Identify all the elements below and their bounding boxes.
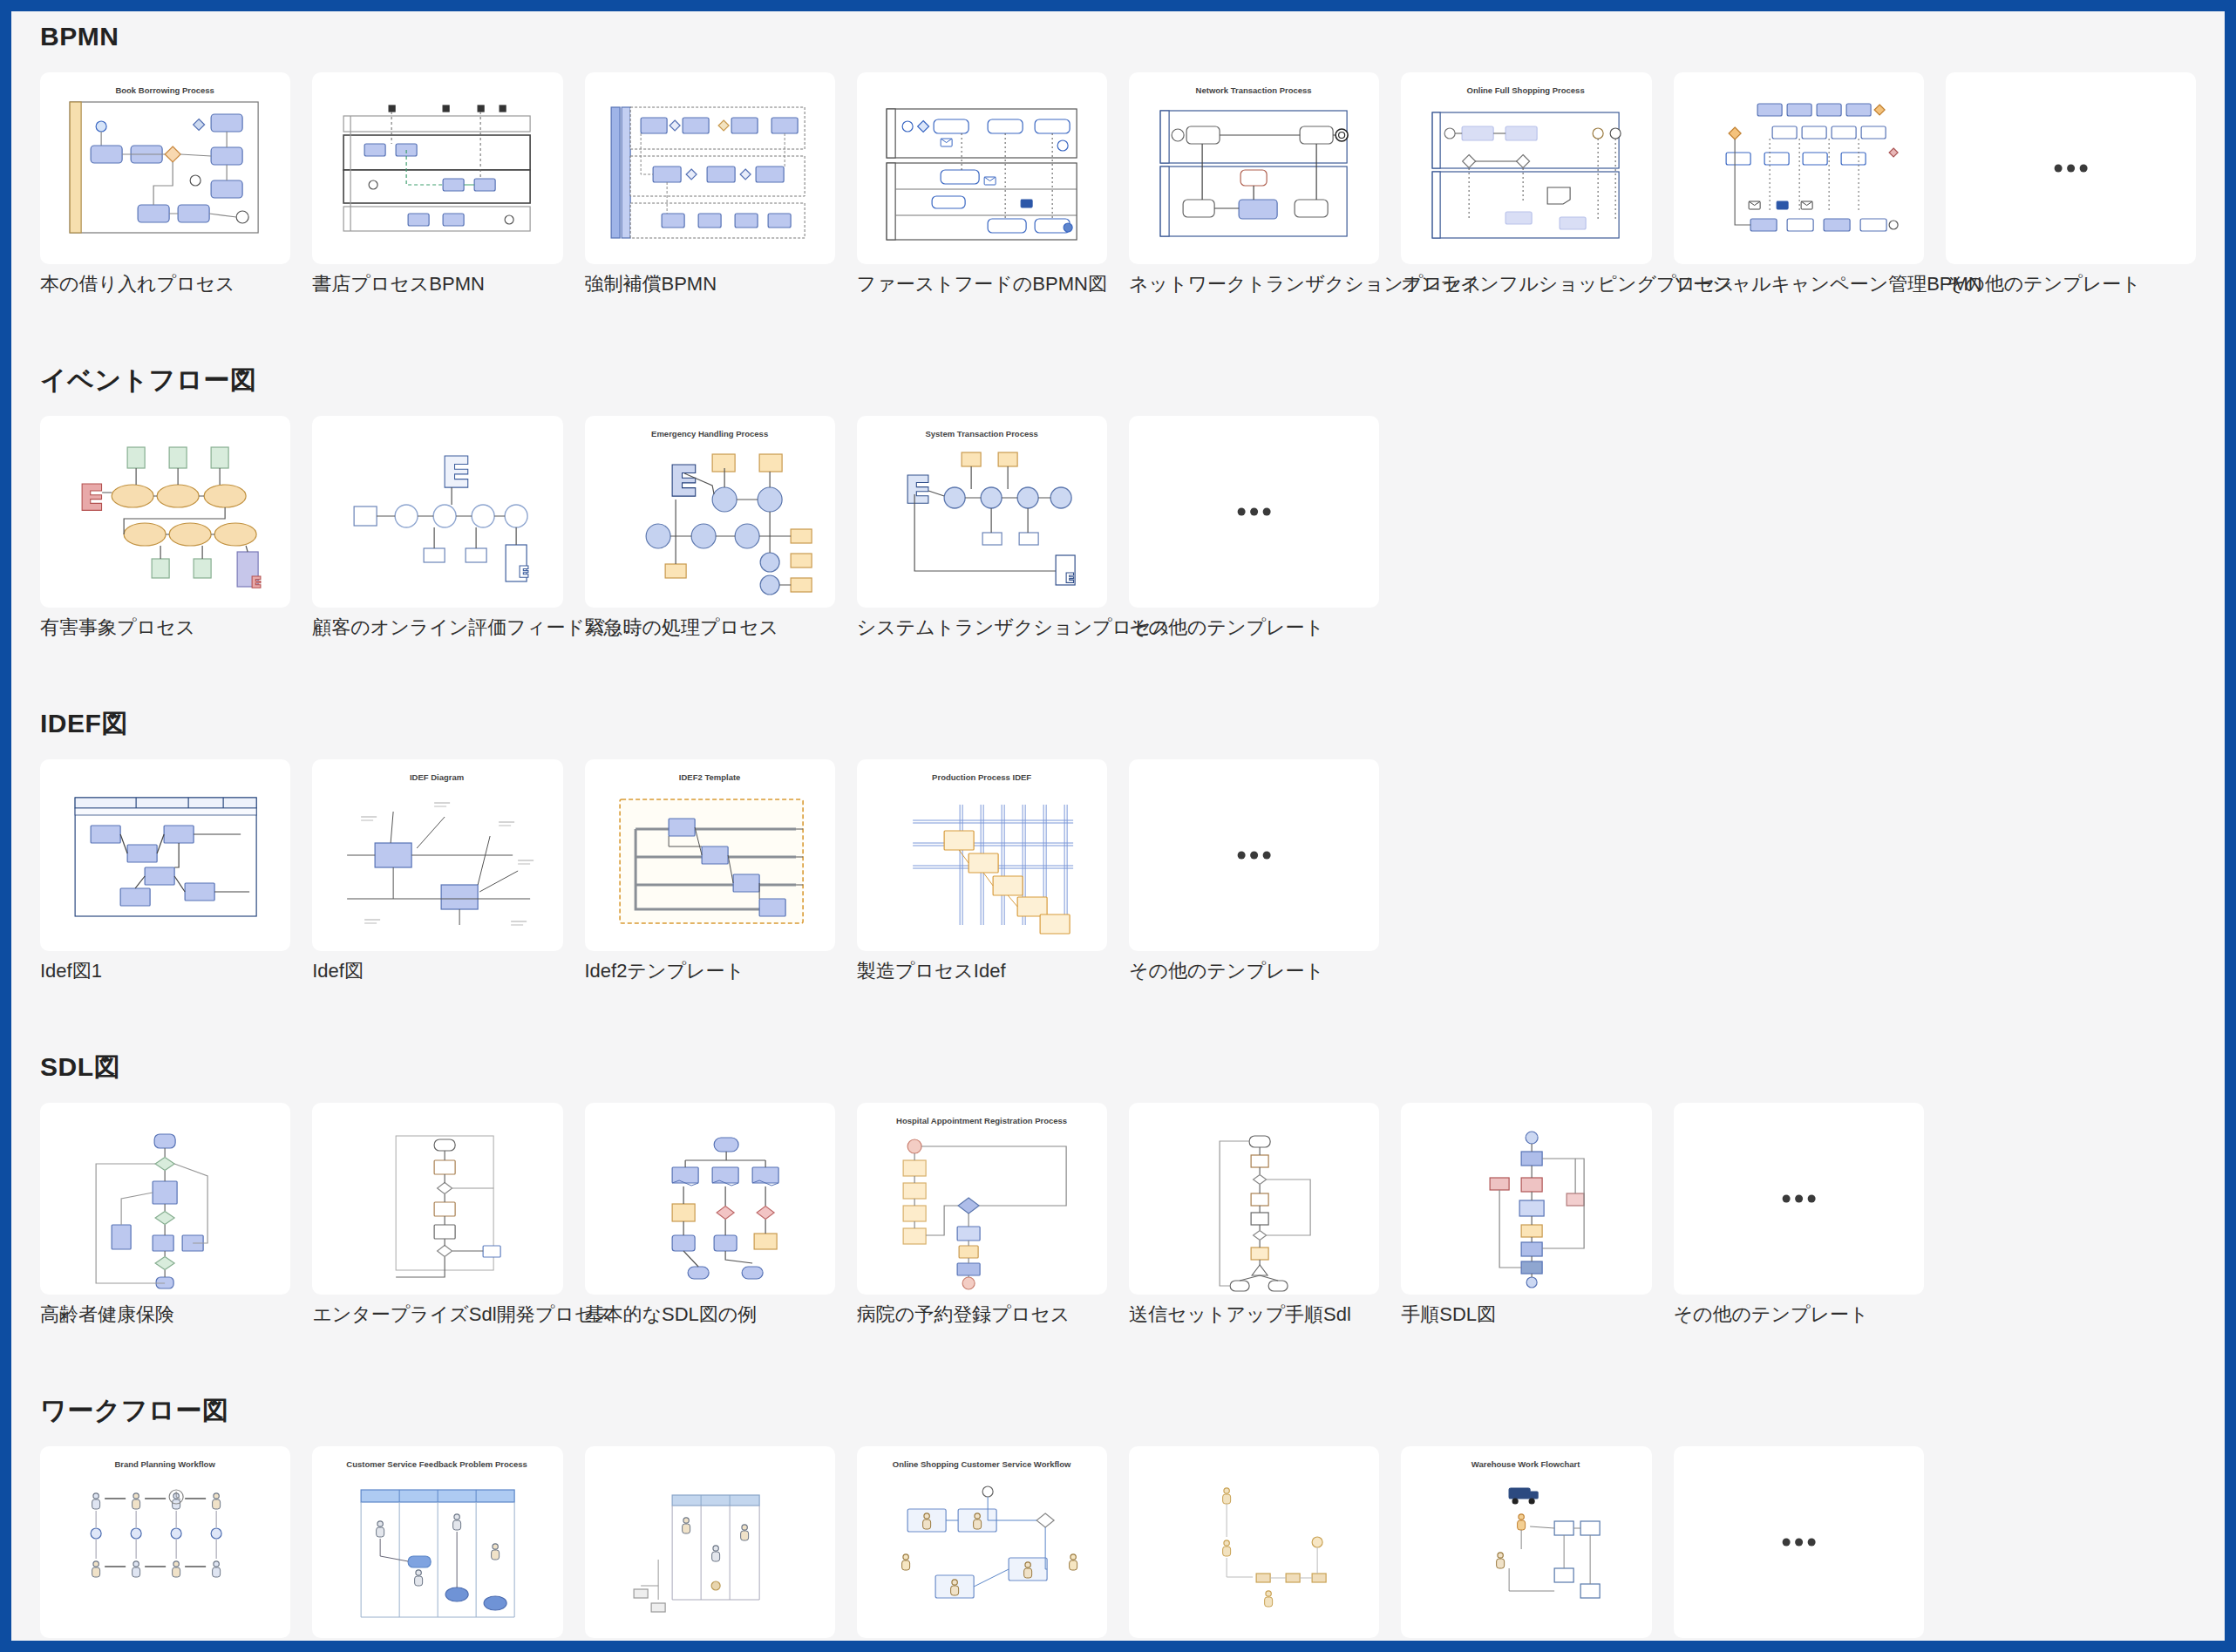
template-thumbnail: IDEF Diagram <box>312 759 562 951</box>
thumbnail-title: System Transaction Process <box>925 429 1037 438</box>
diagram-sketch <box>1129 759 1379 951</box>
diagram-sketch <box>1129 1103 1379 1295</box>
template-thumbnail: Network Transaction Process <box>1129 72 1379 264</box>
template-card-label: ファーストフードのBPMN図 <box>857 271 1107 297</box>
template-section: SDL図高齢者健康保険エンタープライズSdl開発プロセス基本的なSDL図の例Ho… <box>40 1052 2196 1328</box>
diagram-sketch <box>585 1103 835 1295</box>
diagram-sketch <box>857 72 1107 264</box>
template-grid: 有害事象プロセス顧客のオンライン評価フィードバッ...Emergency Han… <box>40 416 2196 641</box>
diagram-sketch <box>40 1103 290 1295</box>
thumbnail-title: Emergency Handling Process <box>651 429 768 438</box>
template-thumbnail <box>1674 1446 1924 1638</box>
template-thumbnail: Book Borrowing Process <box>40 72 290 264</box>
section-title: イベントフロー図 <box>40 365 2196 395</box>
template-thumbnail <box>312 416 562 608</box>
template-card-label: その他のテンプレート <box>1674 1302 1924 1328</box>
template-card-label <box>1401 1645 1651 1652</box>
diagram-sketch: System Transaction Process <box>857 416 1107 608</box>
diagram-sketch <box>1946 72 2196 264</box>
template-card[interactable]: 顧客のオンライン評価フィードバッ... <box>312 416 562 641</box>
template-thumbnail <box>1129 759 1379 951</box>
template-card-label: 手順SDL図 <box>1401 1302 1651 1328</box>
diagram-sketch <box>1674 72 1924 264</box>
thumbnail-title: Online Full Shopping Process <box>1467 85 1585 95</box>
template-card[interactable]: Customer Service Feedback Problem Proces… <box>312 1446 562 1652</box>
template-card-label: 高齢者健康保険 <box>40 1302 290 1328</box>
template-section: イベントフロー図有害事象プロセス顧客のオンライン評価フィードバッ...Emerg… <box>40 365 2196 641</box>
template-card[interactable]: Online Full Shopping Processオンラインフルショッピン… <box>1401 72 1651 297</box>
template-thumbnail: Brand Planning Workflow <box>40 1446 290 1638</box>
thumbnail-title: Hospital Appointment Registration Proces… <box>896 1116 1067 1125</box>
template-card-label: オンラインフルショッピングプロセス <box>1401 271 1651 297</box>
template-card-label: 製造プロセスIdef <box>857 958 1107 984</box>
diagram-sketch <box>1401 1103 1651 1295</box>
section-title: IDEF図 <box>40 709 2196 738</box>
template-card-label <box>1674 1645 1924 1652</box>
template-thumbnail: Customer Service Feedback Problem Proces… <box>312 1446 562 1638</box>
template-card-label: Idef2テンプレート <box>585 958 835 984</box>
template-card[interactable]: 送信セットアップ手順Sdl <box>1129 1103 1379 1328</box>
template-card[interactable]: Emergency Handling Process緊急時の処理プロセス <box>585 416 835 641</box>
template-card-label: ネットワークトランザクションプロセス <box>1129 271 1379 297</box>
template-card[interactable]: Network Transaction Processネットワークトランザクショ… <box>1129 72 1379 297</box>
diagram-sketch <box>585 72 835 264</box>
template-card[interactable]: System Transaction Processシステムトランザクションプロ… <box>857 416 1107 641</box>
template-card-label: その他のテンプレート <box>1129 615 1379 641</box>
thumbnail-title: Customer Service Feedback Problem Proces… <box>347 1459 528 1469</box>
diagram-sketch <box>40 759 290 951</box>
template-card-label: Idef図 <box>312 958 562 984</box>
diagram-sketch <box>1129 416 1379 608</box>
template-card[interactable]: Hospital Appointment Registration Proces… <box>857 1103 1107 1328</box>
diagram-sketch: Emergency Handling Process <box>585 416 835 608</box>
template-thumbnail: Hospital Appointment Registration Proces… <box>857 1103 1107 1295</box>
diagram-sketch: IDEF Diagram <box>312 759 562 951</box>
diagram-sketch: Brand Planning Workflow <box>40 1446 290 1638</box>
template-card-label: 基本的なSDL図の例 <box>585 1302 835 1328</box>
template-card-label: 病院の予約登録プロセス <box>857 1302 1107 1328</box>
template-grid: Idef図1IDEF DiagramIdef図IDEF2 TemplateIde… <box>40 759 2196 984</box>
diagram-sketch <box>40 416 290 608</box>
template-card-label: その他のテンプレート <box>1129 958 1379 984</box>
ellipsis-icon <box>2054 165 2087 173</box>
thumbnail-title: Online Shopping Customer Service Workflo… <box>893 1459 1071 1469</box>
ellipsis-icon <box>1238 852 1271 860</box>
diagram-sketch: IDEF2 Template <box>585 759 835 951</box>
template-section: IDEF図Idef図1IDEF DiagramIdef図IDEF2 Templa… <box>40 709 2196 984</box>
ellipsis-icon <box>1238 508 1271 516</box>
template-card[interactable]: 高齢者健康保険 <box>40 1103 290 1328</box>
template-card-label: Idef図1 <box>40 958 290 984</box>
template-card[interactable]: 有害事象プロセス <box>40 416 290 641</box>
template-card-label: 有害事象プロセス <box>40 615 290 641</box>
template-thumbnail: Emergency Handling Process <box>585 416 835 608</box>
template-thumbnail <box>585 72 835 264</box>
thumbnail-title: Production Process IDEF <box>932 772 1031 782</box>
template-card-label: システムトランザクションプロセス <box>857 615 1107 641</box>
diagram-sketch <box>585 1446 835 1638</box>
template-thumbnail <box>1401 1103 1651 1295</box>
template-card-label <box>40 1645 290 1652</box>
diagram-sketch: Hospital Appointment Registration Proces… <box>857 1103 1107 1295</box>
ellipsis-icon <box>1782 1195 1815 1203</box>
section-title: SDL図 <box>40 1052 2196 1082</box>
template-thumbnail <box>585 1446 835 1638</box>
template-card[interactable]: IDEF DiagramIdef図 <box>312 759 562 984</box>
template-card-label: ソーシャルキャンペーン管理BPMN <box>1674 271 1924 297</box>
template-thumbnail <box>312 1103 562 1295</box>
template-card-label: 本の借り入れプロセス <box>40 271 290 297</box>
template-card[interactable]: 書店プロセスBPMN <box>312 72 562 297</box>
diagram-sketch <box>1674 1446 1924 1638</box>
template-thumbnail <box>1674 72 1924 264</box>
template-section: ワークフロー図Brand Planning WorkflowCustomer S… <box>40 1396 2196 1652</box>
template-card-label <box>585 1645 835 1652</box>
template-card[interactable]: Brand Planning Workflow <box>40 1446 290 1652</box>
template-thumbnail <box>40 1103 290 1295</box>
template-thumbnail: Warehouse Work Flowchart <box>1401 1446 1651 1638</box>
template-card[interactable]: ファーストフードのBPMN図 <box>857 72 1107 297</box>
diagram-sketch: Online Shopping Customer Service Workflo… <box>857 1446 1107 1638</box>
more-templates-card[interactable]: その他のテンプレート <box>1129 416 1379 641</box>
template-card[interactable]: 強制補償BPMN <box>585 72 835 297</box>
ellipsis-icon <box>1782 1539 1815 1547</box>
template-card[interactable]: ソーシャルキャンペーン管理BPMN <box>1674 72 1924 297</box>
template-section: BPMNBook Borrowing Process本の借り入れプロセス書店プロ… <box>40 22 2196 297</box>
template-card-label <box>857 1645 1107 1652</box>
template-thumbnail: IDEF2 Template <box>585 759 835 951</box>
template-thumbnail <box>40 416 290 608</box>
diagram-sketch: Online Full Shopping Process <box>1401 72 1651 264</box>
template-thumbnail <box>1129 1103 1379 1295</box>
template-thumbnail <box>1129 416 1379 608</box>
more-templates-card[interactable]: その他のテンプレート <box>1674 1103 1924 1328</box>
template-card-label: 緊急時の処理プロセス <box>585 615 835 641</box>
diagram-sketch <box>312 416 562 608</box>
template-card[interactable]: 基本的なSDL図の例 <box>585 1103 835 1328</box>
template-thumbnail <box>40 759 290 951</box>
template-card-label: 送信セットアップ手順Sdl <box>1129 1302 1379 1328</box>
template-card[interactable]: エンタープライズSdl開発プロセス <box>312 1103 562 1328</box>
thumbnail-title: IDEF2 Template <box>678 772 740 782</box>
section-title: ワークフロー図 <box>40 1396 2196 1425</box>
template-thumbnail <box>585 1103 835 1295</box>
thumbnail-title: Warehouse Work Flowchart <box>1471 1459 1580 1469</box>
template-thumbnail: Production Process IDEF <box>857 759 1107 951</box>
template-card[interactable]: Online Shopping Customer Service Workflo… <box>857 1446 1107 1652</box>
template-grid: 高齢者健康保険エンタープライズSdl開発プロセス基本的なSDL図の例Hospit… <box>40 1103 2196 1328</box>
template-card-label <box>1129 1645 1379 1652</box>
template-card[interactable]: IDEF2 TemplateIdef2テンプレート <box>585 759 835 984</box>
more-templates-card[interactable]: その他のテンプレート <box>1129 759 1379 984</box>
more-templates-card[interactable]: その他のテンプレート <box>1946 72 2196 297</box>
template-card-label: その他のテンプレート <box>1946 271 2196 297</box>
section-title: BPMN <box>40 22 2196 51</box>
diagram-sketch: Production Process IDEF <box>857 759 1107 951</box>
diagram-sketch: Book Borrowing Process <box>40 72 290 264</box>
thumbnail-title: Network Transaction Process <box>1196 85 1312 95</box>
template-thumbnail: Online Full Shopping Process <box>1401 72 1651 264</box>
template-thumbnail: System Transaction Process <box>857 416 1107 608</box>
template-gallery: BPMNBook Borrowing Process本の借り入れプロセス書店プロ… <box>11 11 2225 1652</box>
template-card-label: 書店プロセスBPMN <box>312 271 562 297</box>
template-card-label: 強制補償BPMN <box>585 271 835 297</box>
template-card[interactable]: Book Borrowing Process本の借り入れプロセス <box>40 72 290 297</box>
template-thumbnail <box>857 72 1107 264</box>
template-card[interactable] <box>1129 1446 1379 1652</box>
diagram-sketch: Warehouse Work Flowchart <box>1401 1446 1651 1638</box>
template-thumbnail <box>1946 72 2196 264</box>
template-card[interactable] <box>585 1446 835 1652</box>
template-card-label <box>312 1645 562 1652</box>
template-thumbnail <box>1674 1103 1924 1295</box>
template-thumbnail: Online Shopping Customer Service Workflo… <box>857 1446 1107 1638</box>
template-card-label: 顧客のオンライン評価フィードバッ... <box>312 615 562 641</box>
diagram-sketch <box>312 72 562 264</box>
template-card[interactable]: Production Process IDEF製造プロセスIdef <box>857 759 1107 984</box>
diagram-sketch: Customer Service Feedback Problem Proces… <box>312 1446 562 1638</box>
diagram-sketch: Network Transaction Process <box>1129 72 1379 264</box>
template-thumbnail <box>1129 1446 1379 1638</box>
diagram-sketch <box>1129 1446 1379 1638</box>
template-thumbnail <box>312 72 562 264</box>
template-card[interactable]: Warehouse Work Flowchart <box>1401 1446 1651 1652</box>
thumbnail-title: IDEF Diagram <box>410 772 464 782</box>
diagram-sketch <box>1674 1103 1924 1295</box>
diagram-sketch <box>312 1103 562 1295</box>
template-grid: Brand Planning WorkflowCustomer Service … <box>40 1446 2196 1652</box>
thumbnail-title: Book Borrowing Process <box>115 85 214 95</box>
more-templates-card[interactable] <box>1674 1446 1924 1652</box>
thumbnail-title: Brand Planning Workflow <box>114 1459 215 1469</box>
template-card[interactable]: 手順SDL図 <box>1401 1103 1651 1328</box>
template-card[interactable]: Idef図1 <box>40 759 290 984</box>
template-grid: Book Borrowing Process本の借り入れプロセス書店プロセスBP… <box>40 72 2196 297</box>
template-card-label: エンタープライズSdl開発プロセス <box>312 1302 562 1328</box>
